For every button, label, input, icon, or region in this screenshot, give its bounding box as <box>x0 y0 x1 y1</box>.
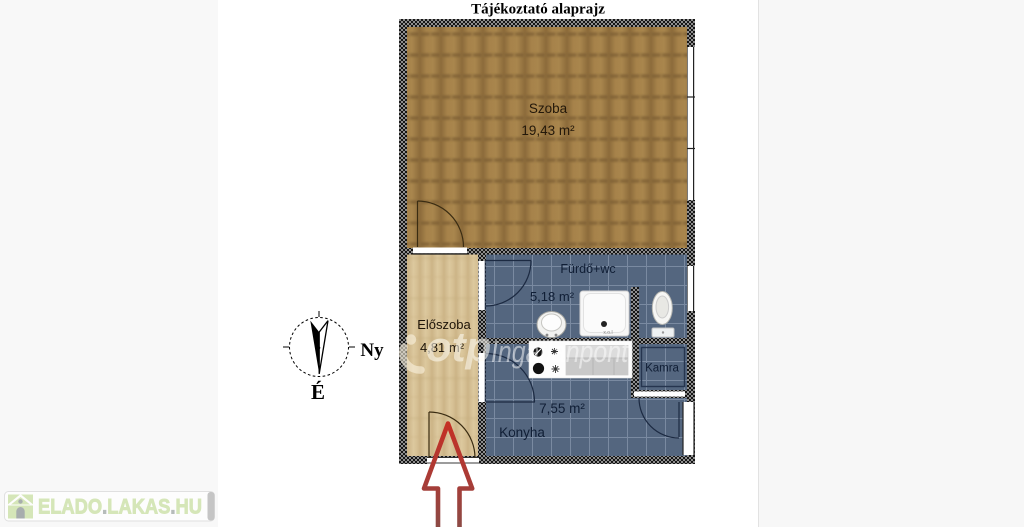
svg-text:Fürdő+wc: Fürdő+wc <box>560 262 615 276</box>
svg-text:19,43 m²: 19,43 m² <box>521 123 575 138</box>
svg-text:Ny: Ny <box>360 340 384 361</box>
svg-text:Ingatlanpont: Ingatlanpont <box>491 334 629 369</box>
svg-text:Kamra: Kamra <box>645 363 679 375</box>
svg-text:7,55 m²: 7,55 m² <box>539 401 585 416</box>
svg-text:5,18 m²: 5,18 m² <box>530 289 575 304</box>
svg-text:otp: otp <box>426 323 491 370</box>
svg-text:Szoba: Szoba <box>529 101 568 116</box>
svg-text:ELADO.LAKAS.HU: ELADO.LAKAS.HU <box>38 495 202 519</box>
svg-text:É: É <box>311 380 325 404</box>
svg-text:Konyha: Konyha <box>499 425 545 440</box>
svg-text:Tájékoztató alaprajz: Tájékoztató alaprajz <box>471 2 605 18</box>
